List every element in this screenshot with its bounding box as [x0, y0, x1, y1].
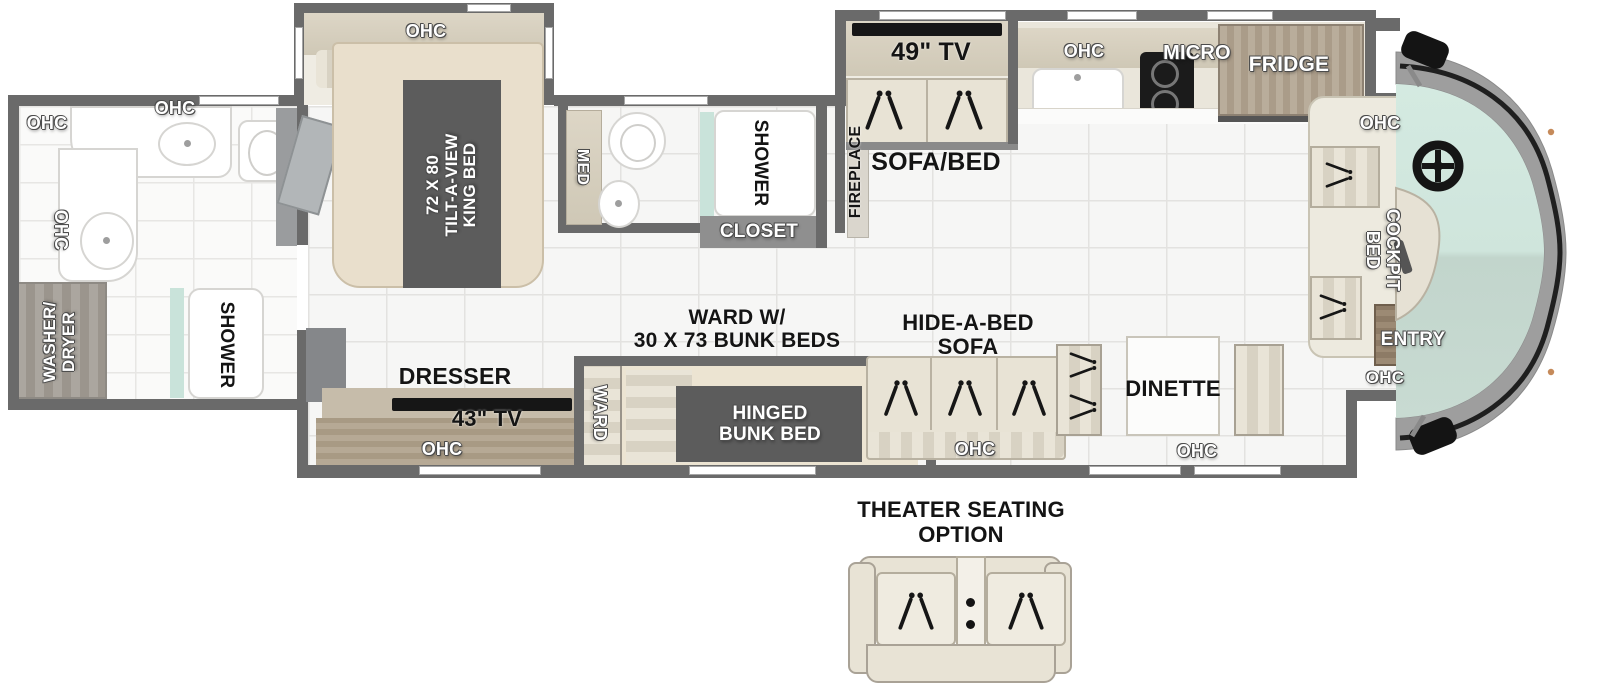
ohc-label: OHC	[16, 112, 78, 136]
wall	[1368, 18, 1400, 31]
window	[468, 5, 510, 11]
shower-glass	[170, 288, 184, 398]
toilet-bowl-icon	[620, 124, 656, 162]
hide-a-bed-label: HIDE-A-BED SOFA	[878, 308, 1058, 362]
tv-49-label: 49" TV	[856, 38, 1006, 68]
sofa-divider	[930, 358, 932, 430]
window	[625, 97, 707, 104]
shower-glass	[700, 112, 714, 216]
recline-arrow-icon	[1068, 348, 1098, 382]
marker-light	[1548, 369, 1554, 375]
fridge-label: FRIDGE	[1246, 52, 1332, 78]
wall	[835, 106, 845, 233]
ohc-label: OHC	[1052, 40, 1116, 64]
window	[546, 28, 552, 78]
window	[1090, 467, 1180, 474]
sofa-bed-label: SOFA/BED	[852, 148, 1020, 178]
ohc-label: OHC	[1166, 440, 1228, 464]
outside-mask	[1357, 401, 1600, 685]
shower-label: SHOWER	[749, 113, 771, 213]
recline-arrow-icon	[1068, 390, 1098, 424]
entry-label: ENTRY	[1376, 328, 1450, 352]
ohc-label: OHC	[395, 20, 457, 44]
window	[690, 467, 815, 474]
recline-arrow-icon	[878, 378, 924, 418]
window	[200, 97, 278, 104]
slide-wall	[574, 356, 584, 478]
sofa-divider	[996, 358, 998, 430]
recline-arrow-icon	[1324, 158, 1354, 192]
ohc-label: OHC	[1348, 112, 1412, 136]
bunk-note-label: WARD W/ 30 X 73 BUNK BEDS	[614, 303, 860, 355]
window	[1068, 12, 1136, 19]
dresser-label: DRESSER	[390, 363, 520, 391]
window	[1195, 467, 1280, 474]
recline-arrow-icon	[893, 590, 939, 632]
ohc-label: OHC	[1354, 366, 1416, 390]
slide-wall	[1008, 12, 1018, 144]
wall	[1346, 390, 1357, 478]
faucet-icon	[184, 140, 191, 147]
ward-label: WARD	[588, 365, 610, 461]
shower-label: SHOWER	[214, 293, 238, 397]
king-bed-label: 72 X 80 TILT-A-VIEW KING BED	[420, 90, 484, 280]
dinette-booth	[1234, 344, 1284, 436]
theater-option-label: THEATER SEATING OPTION	[843, 496, 1079, 548]
theater-footrest	[866, 644, 1056, 683]
window	[1208, 12, 1272, 19]
slide-wall	[835, 10, 846, 106]
window	[296, 28, 302, 78]
window	[880, 12, 1005, 19]
wall	[8, 399, 308, 410]
washer-dryer-label: WASHER/ DRYER	[38, 284, 82, 400]
recline-arrow-icon	[936, 88, 992, 132]
closet-label: CLOSET	[704, 219, 814, 245]
ohc-label: OHC	[410, 438, 474, 462]
window	[420, 467, 540, 474]
cupholder-icon	[966, 598, 975, 607]
ohc-label: OHC	[48, 184, 72, 276]
dinette-label: DINETTE	[1122, 376, 1224, 402]
faucet-icon	[615, 200, 622, 207]
med-label: MED	[572, 135, 592, 199]
marker-light	[1548, 129, 1554, 135]
wall	[554, 95, 860, 106]
recline-arrow-icon	[942, 378, 988, 418]
tv-49	[852, 23, 1002, 36]
slide-wall	[294, 3, 554, 13]
faucet-icon	[103, 237, 110, 244]
side-mirror-icon	[1398, 28, 1451, 86]
hinged-bunk-label: HINGED BUNK BED	[690, 400, 850, 450]
wall	[1346, 390, 1448, 401]
recline-arrow-icon	[1003, 590, 1049, 632]
rv-floorplan: OHC OHC OHC WASHER/ DRYER SHOWER OHC 72 …	[0, 0, 1600, 685]
micro-label: MICRO	[1158, 40, 1236, 66]
sofa-bed-divider	[926, 80, 928, 142]
ohc-label: OHC	[144, 97, 206, 121]
faucet-icon	[1074, 74, 1081, 81]
recline-arrow-icon	[1318, 290, 1348, 324]
wall	[8, 95, 19, 410]
recline-arrow-icon	[1006, 378, 1052, 418]
cupholder-icon	[966, 620, 975, 629]
cockpit-bed-label: COCKPIT BED	[1358, 196, 1406, 304]
tv-43-label: 43" TV	[428, 406, 546, 432]
ohc-label: OHC	[944, 438, 1006, 462]
wall	[816, 106, 827, 248]
